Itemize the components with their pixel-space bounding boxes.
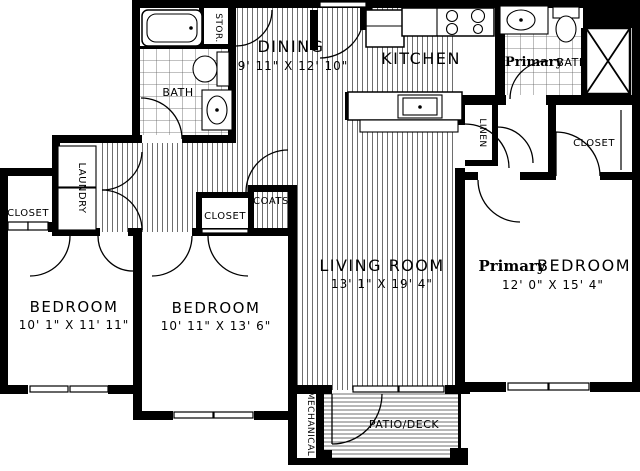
closet-1-slider-panel xyxy=(28,222,48,230)
bedroom-2-window xyxy=(174,412,213,418)
primary-bedroom-label: BEDROOM xyxy=(537,256,631,275)
primary-bedroom-door-arc xyxy=(478,180,520,222)
closet-2-label: CLOSET xyxy=(204,211,246,222)
primary-bath-label: BATH xyxy=(556,56,587,69)
primary-sink-drain-icon xyxy=(519,18,523,22)
bath-toilet-tank xyxy=(217,52,229,86)
floor-plan-page: DINING 9' 11" X 12' 10" KITCHEN Primary … xyxy=(0,0,640,471)
patio-deck-label: PATIO/DECK xyxy=(369,418,440,431)
bath-sink-drain-icon xyxy=(215,108,219,112)
closet-1-label: CLOSET xyxy=(7,208,49,219)
primary-bath-door-opening xyxy=(506,95,546,105)
closet-1-slider-panel xyxy=(8,222,28,230)
kitchen-counter-ledge xyxy=(360,120,458,132)
floor-plan-drawing: DINING 9' 11" X 12' 10" KITCHEN Primary … xyxy=(0,0,640,471)
bedroom-1-window xyxy=(30,386,68,392)
kitchen-label: KITCHEN xyxy=(381,49,461,68)
primary-toilet-bowl xyxy=(556,16,576,42)
burner-icon xyxy=(447,11,458,22)
primary-bedroom-dims: 12' 0" X 15' 4" xyxy=(502,278,604,292)
laundry-label: LAUNDRY xyxy=(76,162,87,213)
bedroom-2-window xyxy=(214,412,253,418)
dining-dims: 9' 11" X 12' 10" xyxy=(238,59,349,73)
bath-label: BATH xyxy=(162,86,193,99)
living-room-label: LIVING ROOM xyxy=(319,256,444,275)
linen-label: LINEN xyxy=(477,118,487,147)
primary-bedroom-window xyxy=(549,383,589,390)
closet-2-track xyxy=(202,229,248,233)
bedroom-1-door-arc xyxy=(98,236,133,271)
entry-door-opening xyxy=(320,2,366,7)
burner-icon xyxy=(447,24,458,35)
bathtub-drain-icon xyxy=(189,26,193,30)
closet-primary-label: CLOSET xyxy=(573,138,615,149)
closet-1-door-arc xyxy=(30,236,70,276)
bath-toilet-bowl xyxy=(193,56,217,82)
bedroom-2-dims: 10' 11" X 13' 6" xyxy=(161,319,272,333)
dining-label: DINING xyxy=(257,37,324,56)
living-room-dims: 13' 1" X 19' 4" xyxy=(331,277,433,291)
burner-icon xyxy=(474,25,483,34)
refrigerator xyxy=(366,10,404,47)
primary-bath-prefix: Primary xyxy=(505,55,564,70)
patio-slider-window xyxy=(399,386,444,392)
patio-slider-window xyxy=(353,386,398,392)
kitchen-sink-drain-icon xyxy=(418,105,422,109)
burner-icon xyxy=(472,10,485,23)
dining-floor xyxy=(236,8,345,143)
bedroom-2-label: BEDROOM xyxy=(172,299,261,317)
coats-label: COATS xyxy=(253,196,289,207)
stor-label: STOR. xyxy=(213,13,223,43)
bedroom-1-window xyxy=(70,386,108,392)
mechanical-label: MECHANICAL xyxy=(305,392,315,457)
bedroom-1-label: BEDROOM xyxy=(30,298,119,316)
primary-bedroom-window xyxy=(508,383,548,390)
bedroom-1-dims: 10' 1" X 11' 11" xyxy=(19,318,130,332)
